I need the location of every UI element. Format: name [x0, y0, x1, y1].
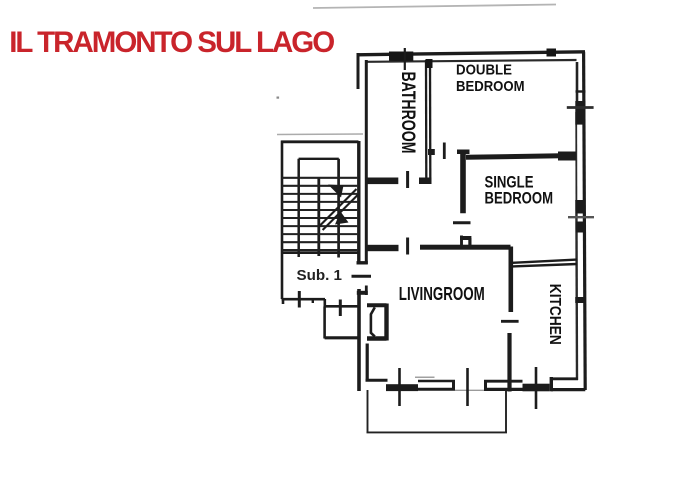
svg-text:BATHROOM: BATHROOM — [397, 72, 418, 154]
svg-text:BEDROOM: BEDROOM — [456, 79, 525, 95]
svg-text:IL TRAMONTO SUL LAGO: IL TRAMONTO SUL LAGO — [9, 26, 335, 59]
svg-text:KITCHEN: KITCHEN — [546, 284, 563, 345]
svg-text:LIVINGROOM: LIVINGROOM — [399, 284, 485, 304]
svg-text:DOUBLE: DOUBLE — [456, 63, 512, 79]
svg-text:BEDROOM: BEDROOM — [485, 189, 554, 207]
svg-text:Sub. 1: Sub. 1 — [297, 267, 343, 284]
